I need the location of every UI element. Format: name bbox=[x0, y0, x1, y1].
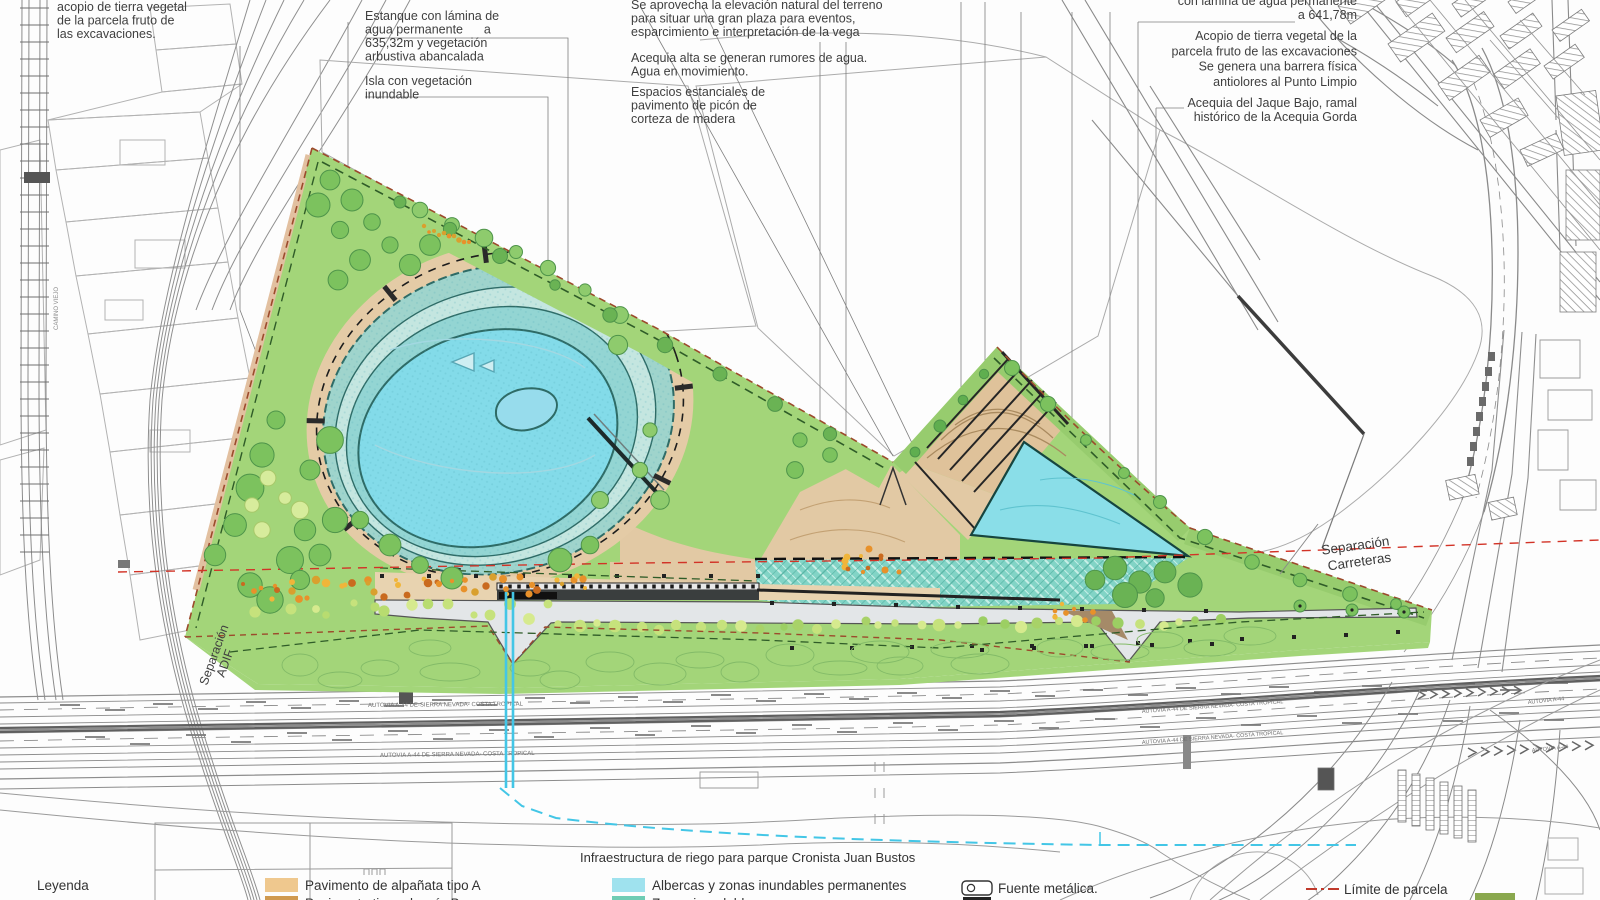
svg-text:de la parcela fruto de: de la parcela fruto de bbox=[57, 14, 174, 28]
svg-text:acopio de tierra vegetal: acopio de tierra vegetal bbox=[57, 0, 187, 14]
svg-text:Fuente metálica.: Fuente metálica. bbox=[998, 881, 1098, 896]
svg-text:Albercas y zonas inundables pe: Albercas y zonas inundables permanentes bbox=[652, 878, 907, 893]
svg-text:para situar una gran plaza par: para situar una gran plaza para eventos, bbox=[631, 12, 855, 26]
svg-text:Leyenda: Leyenda bbox=[37, 878, 89, 893]
svg-text:pavimento de picón de: pavimento de picón de bbox=[631, 99, 757, 113]
svg-text:arbustiva abancalada: arbustiva abancalada bbox=[365, 50, 484, 64]
svg-text:Se genera una barrera física: Se genera una barrera física bbox=[1199, 60, 1357, 74]
svg-text:corteza de madera: corteza de madera bbox=[631, 112, 735, 126]
svg-text:CAMINO VIEJO: CAMINO VIEJO bbox=[54, 287, 60, 330]
svg-text:Agua en movimiento.: Agua en movimiento. bbox=[631, 65, 748, 79]
svg-text:Estanque con lámina de: Estanque con lámina de bbox=[365, 9, 499, 23]
svg-text:Zonas inundables: Zonas inundables bbox=[652, 896, 759, 900]
svg-text:inundable: inundable bbox=[365, 88, 419, 102]
svg-text:635,32m y vegetación: 635,32m y vegetación bbox=[365, 36, 487, 50]
svg-text:las excavaciones.: las excavaciones. bbox=[57, 27, 156, 41]
svg-text:esparcimiento e interpretación: esparcimiento e interpretación de la veg… bbox=[631, 25, 860, 39]
svg-text:Pavimento de alpañata tipo A: Pavimento de alpañata tipo A bbox=[305, 878, 481, 893]
svg-text:Acequia del Jaque Bajo, ramal: Acequia del Jaque Bajo, ramal bbox=[1187, 96, 1357, 110]
svg-text:Se aprovecha la elevación natu: Se aprovecha la elevación natural del te… bbox=[631, 0, 883, 12]
svg-text:con lámina de agua permanente: con lámina de agua permanente bbox=[1178, 0, 1357, 8]
svg-text:Infraestructura de riego para: Infraestructura de riego para parque Cro… bbox=[580, 850, 916, 865]
svg-text:Límite de parcela: Límite de parcela bbox=[1344, 882, 1448, 897]
svg-text:Acequia alta se generan rumore: Acequia alta se generan rumores de agua. bbox=[631, 51, 867, 65]
svg-text:agua permanente a: agua permanente a bbox=[365, 23, 491, 37]
svg-text:a 641,78m: a 641,78m bbox=[1298, 8, 1357, 22]
svg-text:Isla con vegetación: Isla con vegetación bbox=[365, 74, 472, 88]
svg-text:antiolores al Punto Limpio: antiolores al Punto Limpio bbox=[1213, 75, 1357, 89]
svg-text:Pavimento tipo adoquín B: Pavimento tipo adoquín B bbox=[305, 896, 460, 900]
svg-text:Espacios estanciales de: Espacios estanciales de bbox=[631, 85, 765, 99]
svg-text:parcela fruto de las excavacio: parcela fruto de las excavaciones bbox=[1171, 44, 1357, 58]
svg-text:Acopio de tierra vegetal de la: Acopio de tierra vegetal de la bbox=[1195, 29, 1357, 43]
svg-text:histórico de la Acequia Gorda: histórico de la Acequia Gorda bbox=[1194, 110, 1357, 124]
